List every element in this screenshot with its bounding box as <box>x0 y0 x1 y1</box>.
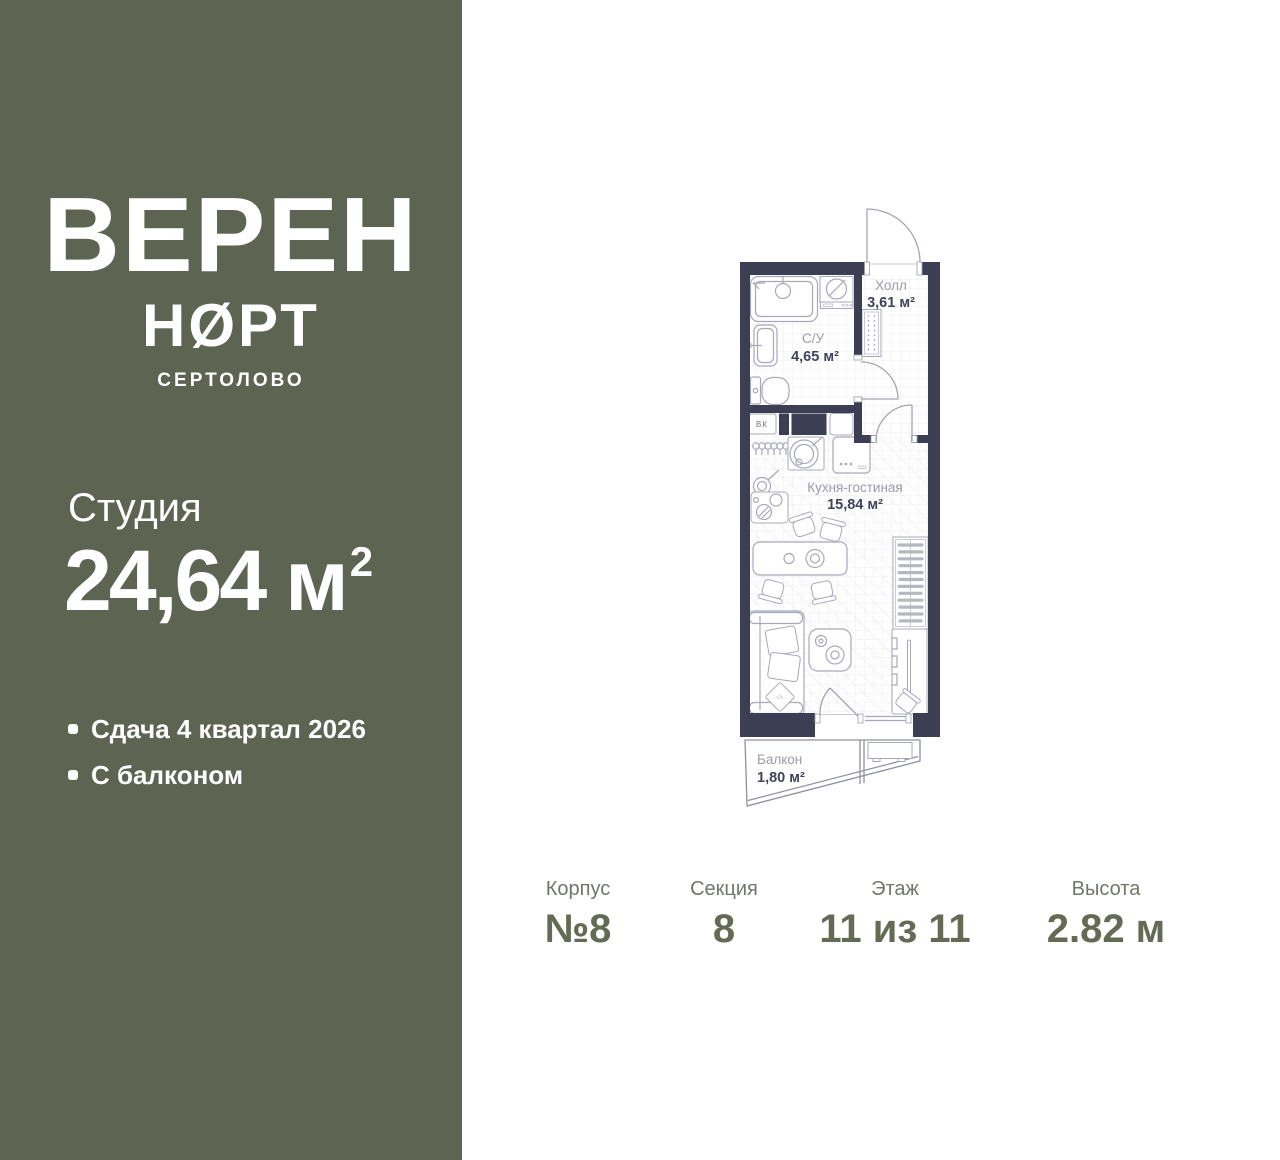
entrance-door <box>867 209 920 262</box>
ac-unit <box>868 743 912 762</box>
floor-plan: ВК <box>738 202 944 818</box>
bullet-dot-icon <box>68 724 78 734</box>
detail-floor-label: Этаж <box>810 878 980 901</box>
hall-closet <box>862 310 881 357</box>
brand-city: СЕРТОЛОВО <box>0 370 462 392</box>
detail-height-value: 2.82 м <box>1021 907 1191 952</box>
detail-floor: Этаж 11 из 11 <box>810 878 980 952</box>
feature-delivery-label: Сдача 4 квартал 2026 <box>91 714 366 745</box>
toilet <box>751 377 790 405</box>
room-area-hall: 3,61 м² <box>867 295 915 311</box>
dining-table <box>753 542 847 575</box>
room-area-balcony: 1,80 м² <box>757 770 805 786</box>
desk <box>892 629 927 715</box>
sidebar: ВЕРЕН НØРТ СЕРТОЛОВО Студия 24,64 м2 Сда… <box>0 0 462 1160</box>
feature-list: Сдача 4 квартал 2026 С балконом <box>68 714 366 806</box>
detail-section-label: Секция <box>644 878 804 901</box>
detail-section-value: 8 <box>644 907 804 952</box>
unit-area: 24,64 м2 <box>64 538 373 624</box>
detail-section: Секция 8 <box>644 878 804 952</box>
detail-floor-value: 11 из 11 <box>810 907 980 952</box>
room-label-bathroom: С/У <box>802 331 825 346</box>
bullet-dot-icon <box>68 770 78 780</box>
detail-height-label: Высота <box>1021 878 1191 901</box>
shaft-cabinet <box>830 414 853 436</box>
duct-label: ВК <box>756 420 768 429</box>
unit-area-value: 24,64 <box>64 533 264 629</box>
duct-box: ВК <box>748 414 776 434</box>
feature-balcony: С балконом <box>68 760 366 790</box>
unit-area-superscript: 2 <box>350 541 373 583</box>
room-area-bathroom: 4,65 м² <box>791 349 839 365</box>
detail-building-value: №8 <box>498 907 658 952</box>
room-label-balcony: Балкон <box>757 752 802 767</box>
sofa <box>748 611 804 716</box>
shaft-wall-block <box>779 414 789 436</box>
room-label-hall: Холл <box>875 278 907 293</box>
bathtub <box>751 277 818 322</box>
washing-machine <box>820 277 853 309</box>
room-area-kitchen: 15,84 м² <box>827 497 883 513</box>
brand-name-bottom: НØРТ <box>0 296 462 356</box>
detail-building-label: Корпус <box>498 878 658 901</box>
apartment-card: ВЕРЕН НØРТ СЕРТОЛОВО Студия 24,64 м2 Сда… <box>0 0 1280 1160</box>
coffee-table <box>809 629 851 671</box>
brand-name-top: ВЕРЕН <box>0 182 462 288</box>
room-label-kitchen: Кухня-гостиная <box>807 480 903 495</box>
wardrobe <box>893 537 928 629</box>
kitchen-sink <box>788 437 824 470</box>
unit-area-unit: м <box>285 533 346 629</box>
detail-building: Корпус №8 <box>498 878 658 952</box>
shaft-wall-block <box>792 414 827 436</box>
detail-height: Высота 2.82 м <box>1021 878 1191 952</box>
feature-balcony-label: С балконом <box>91 760 243 791</box>
unit-type: Студия <box>68 486 202 531</box>
feature-delivery: Сдача 4 квартал 2026 <box>68 714 366 744</box>
